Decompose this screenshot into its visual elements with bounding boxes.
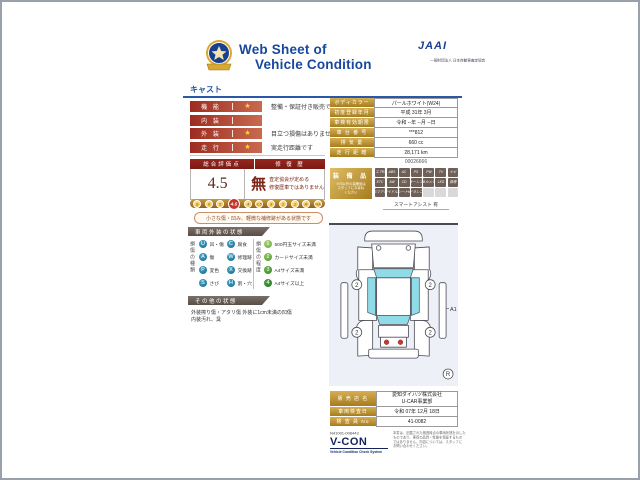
damage-marker: A1 [450, 307, 457, 313]
table-row: 車 台 番 号 ***812 [330, 128, 458, 138]
degree-code-icon: 2 [264, 253, 272, 261]
summary-desc: 実走行距離です [271, 143, 313, 152]
rating-block: 総合評価点 修 復 歴 4.5 無 査定協会が定める 修復歴車ではありません [190, 159, 325, 200]
equipment-badge-empty [435, 188, 445, 197]
repair-header: 修 復 歴 [255, 159, 325, 169]
emblem-svg [203, 39, 235, 73]
emblem-banner [207, 64, 231, 70]
repair-history-value: 無 [251, 173, 266, 199]
damage-type-item: W 修理跡 [227, 253, 252, 261]
table-row: 検 査 員 No 41-0082 [330, 417, 458, 427]
equipment-badge: 禁煙 [448, 178, 459, 187]
equipment-badges: エアB ABS AC PS PW TV ナビ ETC AW CD キーレス Bカ… [375, 168, 458, 197]
damage-code-icon: H [227, 279, 235, 287]
summary-desc: 目立つ損傷はありません [271, 129, 337, 138]
serial-number: 00026666 [374, 159, 458, 165]
grade-dot: RA [314, 200, 322, 208]
equipment-badge: スマアシ [375, 188, 385, 197]
summary-label: 走 行 [190, 143, 232, 152]
damage-code-icon: U [199, 240, 207, 248]
damage-degree-item: 4 A4サイズ以上 [264, 279, 304, 287]
equipment-badge: ETC [375, 178, 385, 187]
summary-row-exterior: 外 装 ★ 目立つ損傷はありません [190, 128, 337, 139]
damage-type-item: S さび [199, 279, 219, 287]
damage-type-item: X 交換跡 [227, 266, 252, 274]
score-header: 総合評価点 [190, 159, 254, 169]
damage-type-item: A 傷 [199, 253, 214, 261]
table-row: 販 売 店 名 愛知ダイハツ株式会社 U-CAR事業部 [330, 391, 458, 407]
summary-pill: 内 装 [190, 115, 262, 126]
model-name: キャスト [190, 84, 222, 95]
damage-code-icon: X [227, 266, 235, 274]
svg-text:2: 2 [429, 330, 432, 336]
equipment-box: 装 備 品 ※印以外の装備品は スタッフにお尋ね ください [330, 168, 372, 199]
svg-text:2: 2 [429, 283, 432, 289]
damage-code-icon: P [199, 266, 207, 274]
table-row: 排 気 量 660 cc [330, 138, 458, 148]
summary-row-function: 機 能 ★ 整備・保証付き販売です [190, 101, 337, 112]
equipment-badge: エアB [375, 168, 385, 177]
sheet-title-line1: Web Sheet of [239, 42, 327, 57]
summary-divider [190, 155, 325, 156]
legend-divider [253, 239, 254, 289]
summary-label: 外 装 [190, 129, 232, 138]
table-row: 走 行 距 離 28,171 km [330, 148, 458, 158]
damage-code-icon: C [227, 240, 235, 248]
jaai-logo: JAAI [418, 40, 447, 52]
star-icon: ★ [233, 101, 262, 112]
table-row: 車両検査日 令和 07年 12月 18日 [330, 407, 458, 417]
other-condition-title: その他の状態 [188, 296, 270, 305]
other-condition-line2: 内装汚れ、臭 [191, 316, 221, 323]
grade-dot: 1 [291, 200, 299, 208]
damage-degree-item: 3 A4サイズ未満 [264, 266, 304, 274]
equipment-badge: PW [423, 168, 434, 177]
rating-header: 総合評価点 修 復 歴 [190, 159, 325, 169]
right-headlight-icon [406, 246, 411, 251]
svg-text:2: 2 [355, 283, 358, 289]
other-condition-line1: 外装擦り傷・アタリ傷 外装に1cm未満の凹傷 [191, 309, 292, 316]
summary-label: 内 装 [190, 116, 232, 125]
car-diagram-panel: 2 2 2 2 A1 R [329, 223, 458, 386]
summary-desc: 整備・保証付き販売です [271, 102, 337, 111]
table-row: 車検有効期限 令和 --年 --月 --日 [330, 118, 458, 128]
jaai-subtitle: 一般財団法人 日本自動車査定協会 [430, 58, 485, 63]
right-taillight-icon [398, 340, 403, 345]
equipment-badge: ナビ [448, 168, 459, 177]
sheet: Web Sheet of Vehicle Condition JAAI 一般財団… [183, 33, 462, 469]
grade-dot: 6 [205, 200, 213, 208]
left-door-glass [368, 278, 376, 316]
summary-label: 機 能 [190, 102, 232, 111]
exterior-section-title: 車両外装の状態 [188, 227, 270, 236]
damage-degree-item: 1 500円玉サイズ未満 [264, 240, 316, 248]
table-row: 初度登録年月 平成 31年 3月 [330, 108, 458, 118]
equipment-badge: アイドルS [387, 188, 397, 197]
equipment-badge-empty [423, 188, 434, 197]
equipment-badge: AW [387, 178, 397, 187]
equipment-title: 装 備 品 [330, 171, 372, 180]
vcon-logo: V-CON [330, 436, 367, 448]
svg-text:2: 2 [355, 330, 358, 336]
summary-pill: 外 装 ★ [190, 128, 262, 139]
damage-type-item: U 凹・傷 [199, 240, 224, 248]
damage-type-header: 損傷の種類 [189, 241, 196, 289]
right-door-glass [411, 278, 419, 316]
jaai-emblem-icon [203, 39, 235, 73]
svg-text:R: R [446, 372, 451, 378]
jaai-subtitle-wrap: 一般財団法人 日本自動車査定協会 [363, 53, 458, 71]
summary-pill: 走 行 ★ [190, 142, 262, 153]
summary-row-mileage: 走 行 ★ 実走行距離です [190, 142, 313, 153]
left-sill [341, 283, 348, 339]
grade-dot: R [302, 200, 310, 208]
damage-degree-item: 2 カードサイズ未満 [264, 253, 313, 261]
vehicle-condition-sheet-page: Web Sheet of Vehicle Condition JAAI 一般財団… [0, 0, 640, 480]
grade-note: 小さな傷・凹み、軽微な補修跡がある状態です [194, 212, 323, 224]
grade-dot: 3.5 [255, 200, 263, 208]
grade-dot: 5 [216, 200, 224, 208]
equipment-badge: LED [435, 178, 445, 187]
table-row: ボディカラー パールホワイト(W24) [330, 98, 458, 108]
damage-type-item: C 腐食 [227, 240, 247, 248]
equipment-badge-empty [448, 188, 459, 197]
vcon-tagline: Vehicle Condition Check System [330, 450, 382, 454]
grade-dot: S [193, 200, 201, 208]
star-icon: ★ [233, 142, 262, 153]
right-sill [439, 283, 446, 339]
equipment-badge: Bカメラ [423, 178, 434, 187]
document-number: N41001-008443 [330, 431, 359, 436]
damage-code-icon: S [199, 279, 207, 287]
damage-degree-header: 損傷の程度 [255, 241, 262, 289]
vehicle-info-table: ボディカラー パールホワイト(W24) 初度登録年月 平成 31年 3月 車検有… [330, 98, 458, 158]
overall-score: 4.5 [191, 169, 245, 199]
vcon-underline [330, 448, 388, 449]
grade-dot: 3 [267, 200, 275, 208]
summary-row-interior: 内 装 [190, 115, 271, 126]
equipment-note: ※印以外の装備品は スタッフにお尋ね ください [330, 182, 372, 195]
tailgate [379, 325, 409, 337]
rear-glass [377, 315, 411, 324]
dealer-name: 愛知ダイハツ株式会社 U-CAR事業部 [376, 391, 458, 407]
star-icon: ★ [233, 128, 262, 139]
rating-body: 4.5 無 査定協会が定める 修復歴車ではありません [190, 169, 325, 200]
damage-type-item: P 変色 [199, 266, 219, 274]
inspection-date: 令和 07年 12月 18日 [376, 407, 458, 417]
damage-code-icon: A [199, 253, 207, 261]
equipment-badge: PS [411, 168, 421, 177]
degree-code-icon: 3 [264, 266, 272, 274]
dealer-table: 販 売 店 名 愛知ダイハツ株式会社 U-CAR事業部 車両検査日 令和 07年… [330, 391, 458, 427]
degree-code-icon: 1 [264, 240, 272, 248]
grade-dot: 2 [279, 200, 287, 208]
damage-code-icon: W [227, 253, 235, 261]
rear-bumper [369, 349, 419, 358]
grade-dot: 4 [244, 200, 252, 208]
equipment-badge: シートH [399, 188, 410, 197]
front-bumper [365, 231, 423, 241]
smart-assist-note: スマートアシスト 有 [383, 201, 449, 210]
left-taillight-icon [384, 340, 389, 345]
equipment-badge: AC [399, 168, 410, 177]
damage-type-item: H 割・穴 [227, 279, 252, 287]
equipment-badge: TV [435, 168, 445, 177]
summary-pill: 機 能 ★ [190, 101, 262, 112]
left-headlight-icon [376, 246, 381, 251]
sheet-title-line2: Vehicle Condition [255, 57, 372, 72]
degree-code-icon: 4 [264, 279, 272, 287]
equipment-badge: ABS [387, 168, 397, 177]
grade-scale: S 6 5 4.5 4 3.5 3 2 1 R RA [190, 199, 325, 208]
equipment-badge: CD [399, 178, 410, 187]
grade-dot-active: 4.5 [228, 198, 240, 210]
car-exploded-view: 2 2 2 2 A1 R [329, 225, 458, 386]
equipment-badge: キーレス [411, 178, 421, 187]
repair-history-note: 査定協会が定める 修復歴車ではありません [269, 177, 324, 199]
disclaimer: 本書は、記載された検査時点の車両状態を示した ものであり、車両の品質・性能を保証… [393, 432, 640, 449]
inspector-number: 41-0082 [376, 417, 458, 427]
roof [377, 278, 411, 316]
equipment-badge: ドラレコ [411, 188, 421, 197]
windshield-glass [374, 269, 414, 278]
